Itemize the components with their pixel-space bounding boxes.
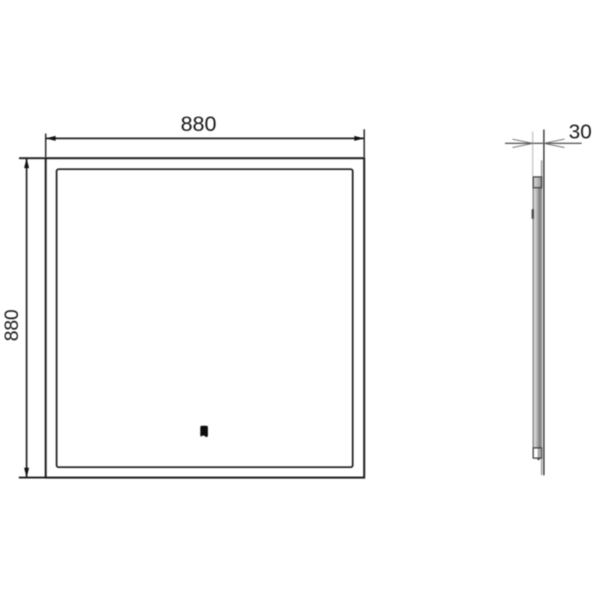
svg-text:30: 30	[569, 121, 592, 144]
svg-text:880: 880	[181, 112, 217, 136]
svg-text:880: 880	[2, 309, 23, 341]
